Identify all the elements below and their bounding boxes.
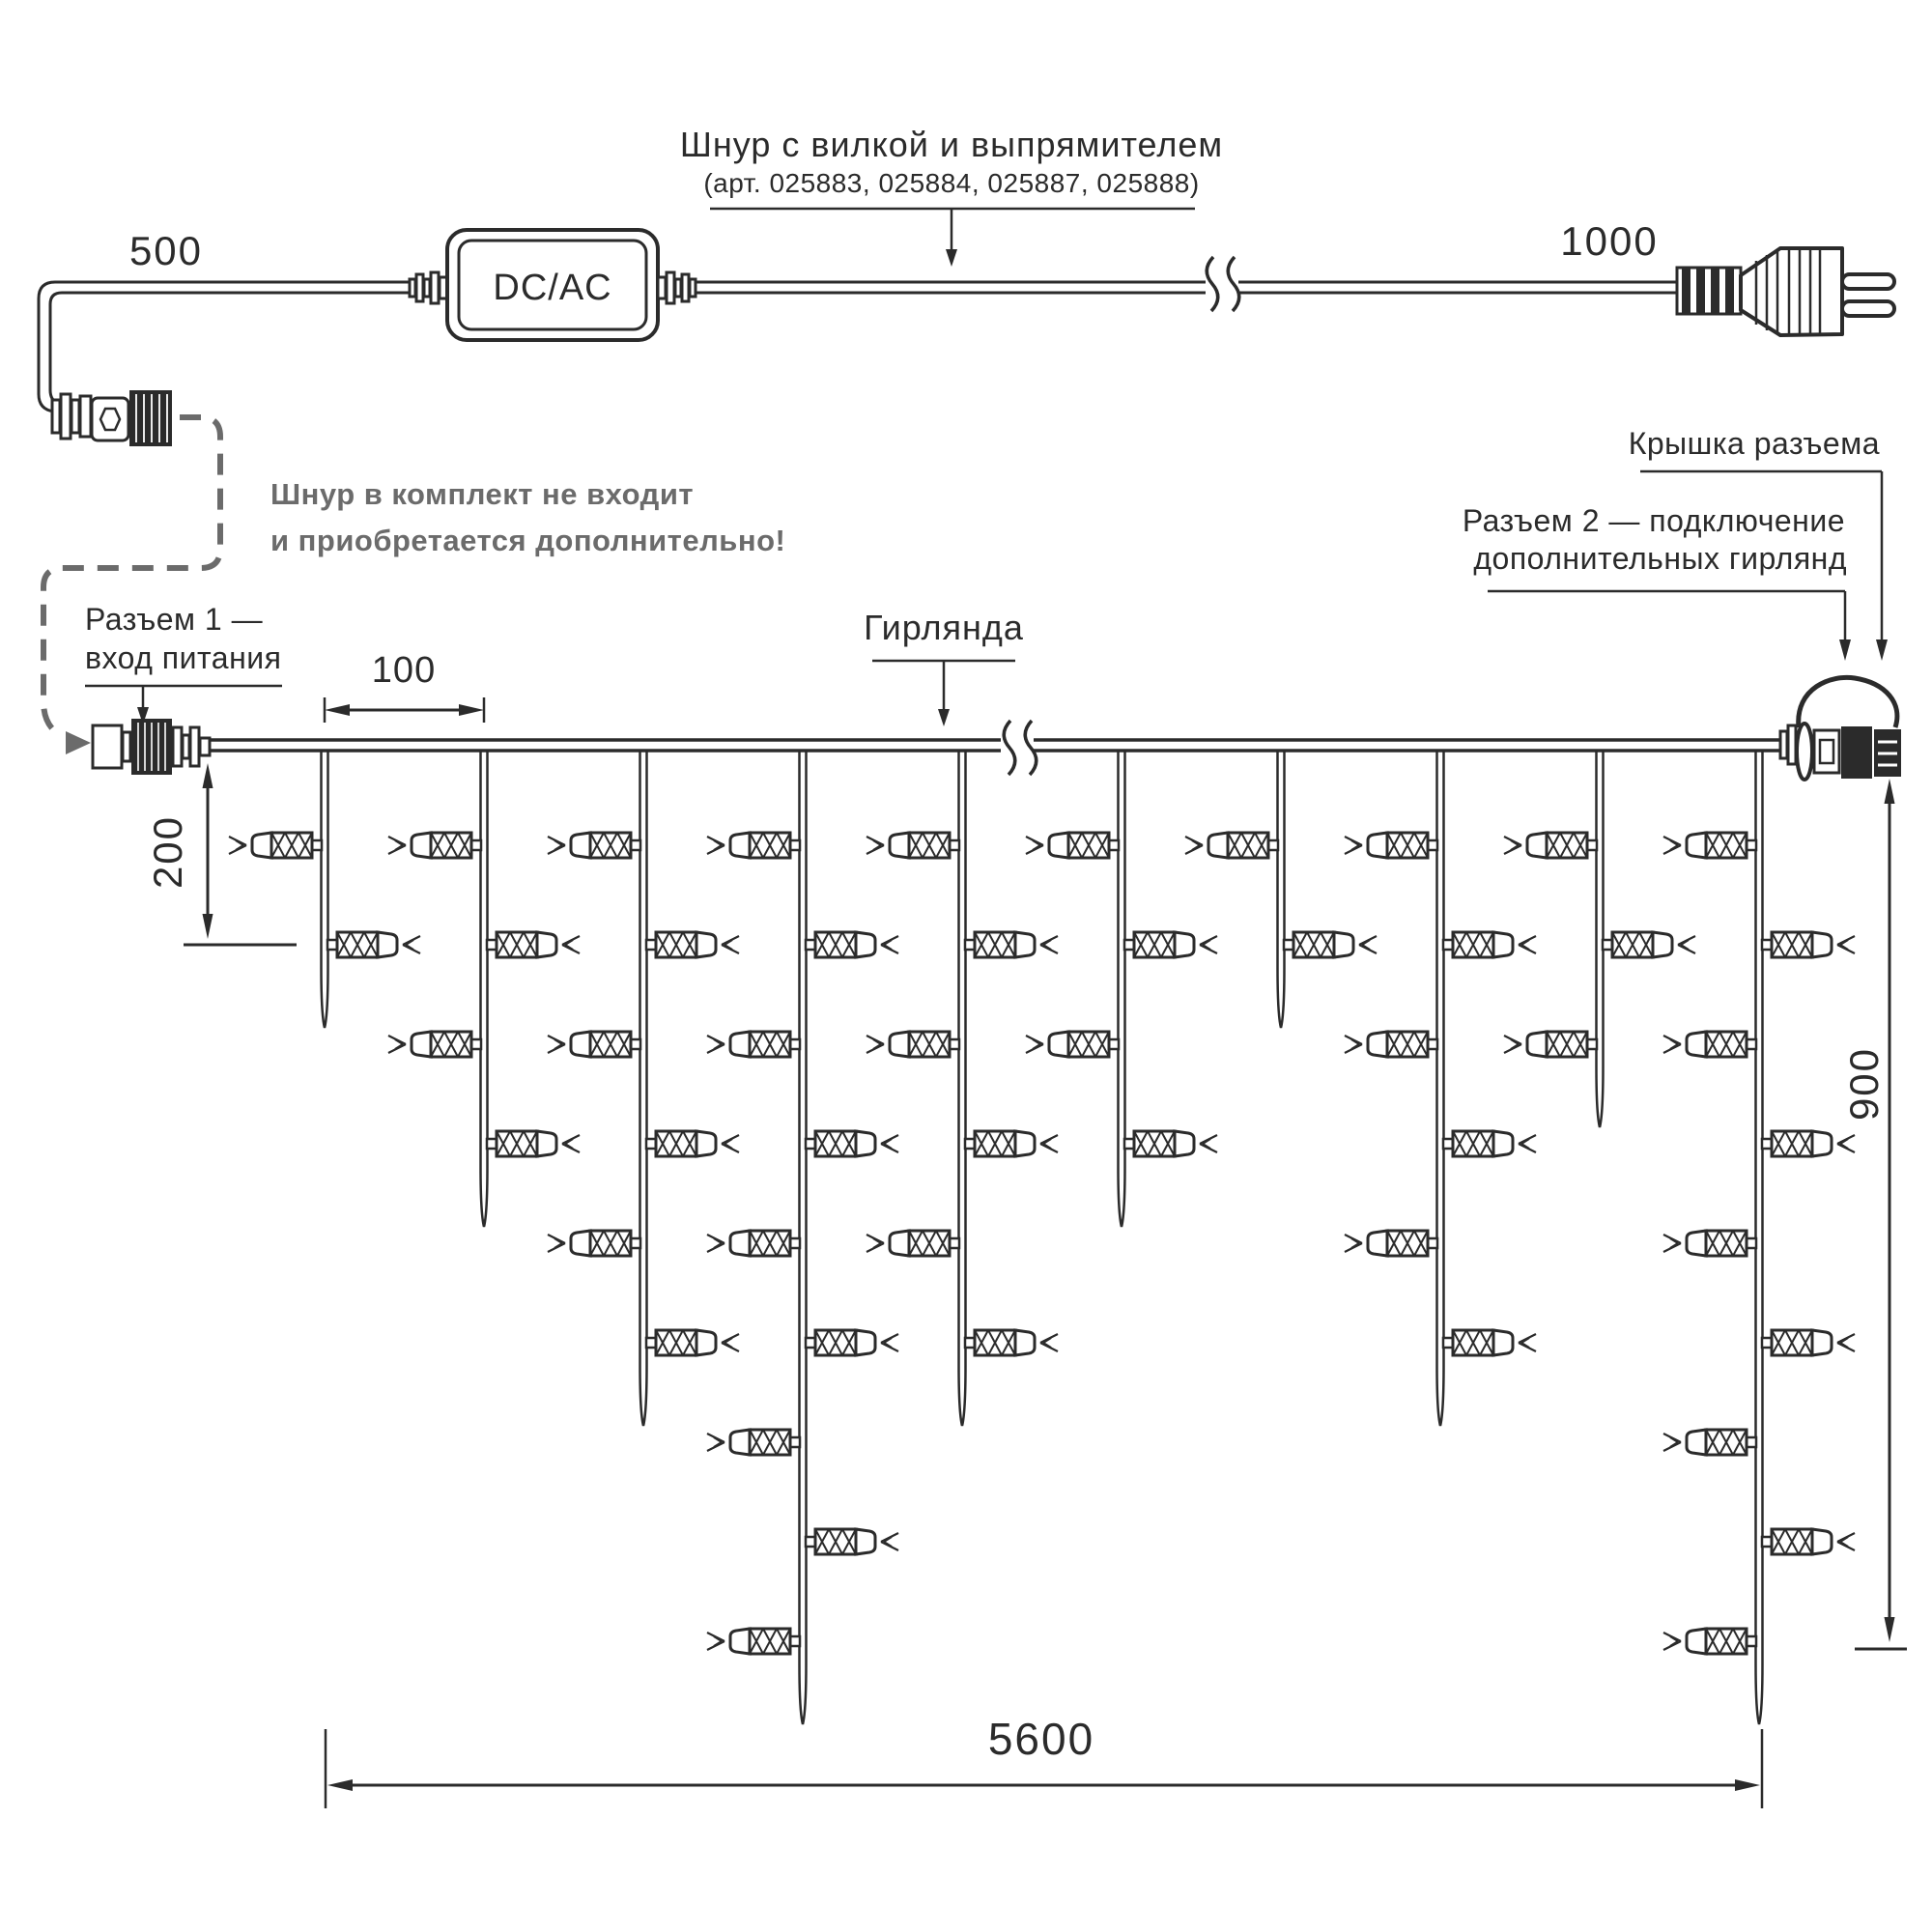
bulb-cap (696, 1330, 716, 1355)
bulb-cap (1175, 932, 1194, 957)
led-bulb (1443, 1330, 1536, 1355)
dim-drop-spacing: 100 (325, 650, 484, 723)
led-bulb (327, 932, 420, 957)
dim-5600-label: 5600 (988, 1714, 1094, 1764)
light-ray-icon (714, 1636, 722, 1646)
light-ray-icon (1043, 1338, 1051, 1348)
light-ray-icon (722, 936, 739, 953)
bulb-cap (696, 1131, 716, 1156)
garland-assembly (93, 677, 1901, 1724)
dim-900-label: 900 (1841, 1047, 1887, 1121)
light-ray-icon (1043, 1139, 1051, 1149)
light-ray-icon (565, 1139, 573, 1149)
light-ray-icon (724, 940, 732, 950)
light-ray-icon (1511, 840, 1519, 850)
led-bulb (1762, 932, 1855, 957)
led-bulb (548, 1231, 640, 1256)
light-ray-icon (724, 1338, 732, 1348)
dim-200-label: 200 (145, 815, 190, 889)
bulb-cap (537, 1131, 556, 1156)
light-ray-icon (1043, 940, 1051, 950)
bulb-cap (1653, 932, 1672, 957)
connector2-label-block: Разъем 2 — подключение дополнительных ги… (1463, 503, 1851, 661)
led-bulb (548, 833, 640, 858)
led-bulb (548, 1032, 640, 1057)
bulb-cap (1687, 1032, 1706, 1057)
led-bulb (1284, 932, 1377, 957)
light-ray-icon (707, 1036, 724, 1053)
led-bulb (229, 833, 322, 858)
cord-article-numbers: (арт. 025883, 025884, 025887, 025888) (703, 168, 1199, 198)
light-ray-icon (1192, 840, 1200, 850)
cord-end-connector-icon (52, 390, 172, 446)
bulb-cap (412, 1032, 431, 1057)
led-bulb (1026, 1032, 1119, 1057)
bulb-cap (1015, 1131, 1035, 1156)
led-bulb (1443, 932, 1536, 957)
icicle-strand (1026, 751, 1217, 1227)
bulb-cap (856, 1131, 875, 1156)
light-ray-icon (1511, 1039, 1519, 1049)
led-bulb (965, 1330, 1058, 1355)
led-bulb (1663, 1231, 1756, 1256)
bulb-cap (730, 1629, 750, 1654)
bulb-cap (537, 932, 556, 957)
light-ray-icon (722, 1334, 739, 1351)
light-ray-icon (1670, 1437, 1678, 1447)
light-ray-icon (1040, 936, 1058, 953)
led-bulb (1345, 833, 1437, 858)
light-ray-icon (1840, 1537, 1848, 1547)
light-ray-icon (1033, 1039, 1040, 1049)
light-ray-icon (881, 1533, 898, 1550)
light-ray-icon (1840, 940, 1848, 950)
bulb-cap (1368, 1032, 1387, 1057)
led-bulb (1124, 932, 1217, 957)
bulb-cap (1687, 833, 1706, 858)
light-ray-icon (548, 1235, 565, 1252)
led-bulb (707, 1430, 800, 1455)
cover-tether-loop (1799, 677, 1897, 727)
bulb-cap (890, 833, 909, 858)
light-ray-icon (1033, 840, 1040, 850)
light-ray-icon (884, 1537, 892, 1547)
led-bulb (388, 1032, 481, 1057)
led-bulb (867, 1032, 959, 1057)
bulb-cap (1049, 1032, 1068, 1057)
bulb-cap (1527, 833, 1547, 858)
light-ray-icon (1504, 837, 1521, 854)
light-ray-icon (1521, 940, 1529, 950)
light-ray-icon (1663, 1036, 1681, 1053)
led-bulb (707, 1231, 800, 1256)
light-ray-icon (867, 1036, 884, 1053)
led-bulb (487, 1131, 580, 1156)
led-bulb (1663, 1430, 1756, 1455)
light-ray-icon (714, 840, 722, 850)
led-bulb (1663, 1629, 1756, 1654)
bulb-cap (1687, 1430, 1706, 1455)
bulb-cap (571, 1231, 590, 1256)
connector2-label-line1: Разъем 2 — подключение (1463, 503, 1845, 538)
bulb-cap (856, 932, 875, 957)
power-input-connector-icon (93, 719, 210, 775)
light-ray-icon (1678, 936, 1695, 953)
light-ray-icon (881, 1135, 898, 1152)
light-ray-icon (1351, 1039, 1359, 1049)
light-ray-icon (1663, 1235, 1681, 1252)
light-ray-icon (1840, 1139, 1848, 1149)
connector2-cover-label: Крышка разъема (1629, 426, 1880, 461)
bulb-cap (1368, 833, 1387, 858)
icicle-strand (229, 751, 420, 1028)
light-ray-icon (1521, 1338, 1529, 1348)
light-ray-icon (236, 840, 243, 850)
light-ray-icon (1663, 837, 1681, 854)
light-ray-icon (562, 936, 580, 953)
light-ray-icon (1345, 1036, 1362, 1053)
led-bulb (487, 932, 580, 957)
light-ray-icon (1837, 1533, 1855, 1550)
light-ray-icon (1504, 1036, 1521, 1053)
light-ray-icon (1837, 936, 1855, 953)
light-ray-icon (707, 837, 724, 854)
bulb-cap (1368, 1231, 1387, 1256)
light-ray-icon (562, 1135, 580, 1152)
light-ray-icon (867, 1235, 884, 1252)
led-bulb (1762, 1529, 1855, 1554)
cord-segment-left (39, 282, 413, 412)
light-ray-icon (1519, 936, 1536, 953)
light-ray-icon (884, 940, 892, 950)
connector1-label-line1: Разъем 1 — (85, 602, 263, 637)
connector1-label-block: Разъем 1 — вход питания (85, 602, 282, 724)
light-ray-icon (1200, 936, 1217, 953)
led-bulb (1345, 1032, 1437, 1057)
light-ray-icon (1200, 1135, 1217, 1152)
dc-ac-adapter-box: DC/AC (410, 230, 696, 340)
not-included-note: Шнур в комплект не входит и приобретаетс… (43, 417, 785, 754)
light-ray-icon (1351, 1238, 1359, 1248)
led-bulb (1663, 833, 1756, 858)
icicle-strand (1185, 751, 1377, 1028)
light-ray-icon (714, 1437, 722, 1447)
icicle-strands (229, 751, 1855, 1724)
garland-wiring-diagram: DC/AC (0, 0, 1932, 1932)
led-bulb (806, 1131, 898, 1156)
cord-segment-left-inner (50, 293, 413, 404)
light-ray-icon (881, 936, 898, 953)
dim-cord-left-label: 500 (129, 228, 203, 273)
light-ray-icon (1040, 1135, 1058, 1152)
light-ray-icon (395, 840, 403, 850)
led-bulb (1762, 1131, 1855, 1156)
connector2-cover-arrow-icon (1876, 639, 1888, 661)
bulb-cap (1049, 833, 1068, 858)
light-ray-icon (1521, 1139, 1529, 1149)
garland-label: Гирлянда (864, 608, 1024, 647)
light-ray-icon (884, 1338, 892, 1348)
bulb-cap (890, 1231, 909, 1256)
led-bulb (1443, 1131, 1536, 1156)
led-bulb (707, 1032, 800, 1057)
light-ray-icon (1362, 940, 1370, 950)
light-ray-icon (388, 837, 406, 854)
light-ray-icon (1351, 840, 1359, 850)
bulb-cap (1812, 932, 1832, 957)
light-ray-icon (1026, 1036, 1043, 1053)
garland-label-block: Гирлянда (864, 608, 1024, 726)
light-ray-icon (724, 1139, 732, 1149)
bulb-cap (1493, 1131, 1513, 1156)
light-ray-icon (229, 837, 246, 854)
bulb-cap (1208, 833, 1228, 858)
light-ray-icon (1670, 840, 1678, 850)
light-ray-icon (406, 940, 413, 950)
bulb-cap (1015, 932, 1035, 957)
light-ray-icon (554, 1039, 562, 1049)
light-ray-icon (554, 1238, 562, 1248)
light-ray-icon (707, 1633, 724, 1650)
icicle-strand (1504, 751, 1695, 1127)
light-ray-icon (867, 837, 884, 854)
title-arrow-icon (946, 249, 957, 267)
led-bulb (1762, 1330, 1855, 1355)
bulb-cap (571, 833, 590, 858)
dashed-connection-path (43, 417, 220, 736)
bulb-cap (1493, 1330, 1513, 1355)
light-ray-icon (403, 936, 420, 953)
cord-title-block: Шнур с вилкой и выпрямителем (арт. 02588… (680, 125, 1223, 267)
light-ray-icon (1837, 1135, 1855, 1152)
led-bulb (806, 1330, 898, 1355)
led-bulb (1663, 1032, 1756, 1057)
bulb-cap (1493, 932, 1513, 957)
light-ray-icon (1345, 1235, 1362, 1252)
bulb-cap (412, 833, 431, 858)
bulb-cap (856, 1330, 875, 1355)
power-plug-icon (1677, 248, 1894, 335)
led-bulb (1504, 833, 1597, 858)
light-ray-icon (707, 1235, 724, 1252)
dim-cord-right-label: 1000 (1560, 218, 1658, 264)
light-ray-icon (714, 1039, 722, 1049)
led-bulb (1345, 1231, 1437, 1256)
led-bulb (867, 1231, 959, 1256)
bulb-cap (1812, 1131, 1832, 1156)
bulb-cap (1687, 1629, 1706, 1654)
light-ray-icon (548, 837, 565, 854)
light-ray-icon (1519, 1334, 1536, 1351)
light-ray-icon (1040, 1334, 1058, 1351)
light-ray-icon (1840, 1338, 1848, 1348)
bulb-cap (730, 1032, 750, 1057)
connector2-arrow-icon (1839, 639, 1851, 661)
connector1-label-line2: вход питания (85, 640, 281, 675)
light-ray-icon (881, 1334, 898, 1351)
bulb-cap (1687, 1231, 1706, 1256)
led-bulb (1185, 833, 1278, 858)
connector2-label-line2: дополнительных гирлянд (1473, 541, 1847, 576)
led-bulb (707, 833, 800, 858)
light-ray-icon (395, 1039, 403, 1049)
icicle-strand (388, 751, 580, 1227)
light-ray-icon (873, 1039, 881, 1049)
light-ray-icon (1670, 1039, 1678, 1049)
bulb-cap (571, 1032, 590, 1057)
output-connector-icon (1780, 677, 1901, 780)
bulb-cap (730, 1430, 750, 1455)
led-bulb (1124, 1131, 1217, 1156)
led-bulb (646, 1330, 739, 1355)
light-ray-icon (1670, 1636, 1678, 1646)
light-ray-icon (565, 940, 573, 950)
bulb-cap (1015, 1330, 1035, 1355)
led-bulb (707, 1629, 800, 1654)
bulb-cap (730, 833, 750, 858)
bulb-cap (696, 932, 716, 957)
light-ray-icon (1359, 936, 1377, 953)
light-ray-icon (873, 1238, 881, 1248)
light-ray-icon (1519, 1135, 1536, 1152)
bulb-cap (378, 932, 397, 957)
bulb-cap (1527, 1032, 1547, 1057)
light-ray-icon (1837, 1334, 1855, 1351)
led-bulb (806, 932, 898, 957)
light-ray-icon (1663, 1633, 1681, 1650)
led-bulb (965, 932, 1058, 957)
bulb-cap (890, 1032, 909, 1057)
cord-title: Шнур с вилкой и выпрямителем (680, 125, 1223, 164)
light-ray-icon (1185, 837, 1203, 854)
light-ray-icon (722, 1135, 739, 1152)
wire-break-icon (1001, 721, 1037, 775)
led-bulb (388, 833, 481, 858)
bulb-cap (730, 1231, 750, 1256)
power-cord-assembly: DC/AC (39, 125, 1894, 446)
led-bulb (806, 1529, 898, 1554)
dim-length: 5600 (326, 1714, 1762, 1808)
light-ray-icon (1345, 837, 1362, 854)
icicle-strand (1663, 751, 1855, 1724)
led-bulb (646, 1131, 739, 1156)
light-ray-icon (388, 1036, 406, 1053)
bulb-cap (1175, 1131, 1194, 1156)
light-ray-icon (1681, 940, 1689, 950)
light-ray-icon (554, 840, 562, 850)
bulb-cap (252, 833, 271, 858)
light-ray-icon (707, 1434, 724, 1451)
led-bulb (1603, 932, 1695, 957)
note-line1: Шнур в комплект не входит (270, 477, 694, 511)
light-ray-icon (1203, 940, 1210, 950)
dashed-arrow-icon (66, 731, 91, 754)
light-ray-icon (1203, 1139, 1210, 1149)
light-ray-icon (1026, 837, 1043, 854)
light-ray-icon (1663, 1434, 1681, 1451)
bulb-cap (1334, 932, 1353, 957)
led-bulb (867, 833, 959, 858)
light-ray-icon (1670, 1238, 1678, 1248)
led-bulb (1026, 833, 1119, 858)
cord-break-icon (1206, 257, 1239, 317)
dim-100-label: 100 (372, 650, 436, 691)
note-line2: и приобретается дополнительно! (270, 524, 785, 557)
led-bulb (646, 932, 739, 957)
bulb-cap (856, 1529, 875, 1554)
bulb-cap (1812, 1529, 1832, 1554)
bulb-cap (1812, 1330, 1832, 1355)
light-ray-icon (548, 1036, 565, 1053)
dc-ac-label: DC/AC (493, 268, 611, 308)
dim-height: 900 (1841, 779, 1907, 1649)
light-ray-icon (714, 1238, 722, 1248)
icicle-strand (707, 751, 898, 1724)
led-bulb (965, 1131, 1058, 1156)
light-ray-icon (884, 1139, 892, 1149)
light-ray-icon (873, 840, 881, 850)
garland-arrow-icon (938, 709, 950, 726)
led-bulb (1504, 1032, 1597, 1057)
diagram-page: DC/AC (0, 0, 1932, 1932)
